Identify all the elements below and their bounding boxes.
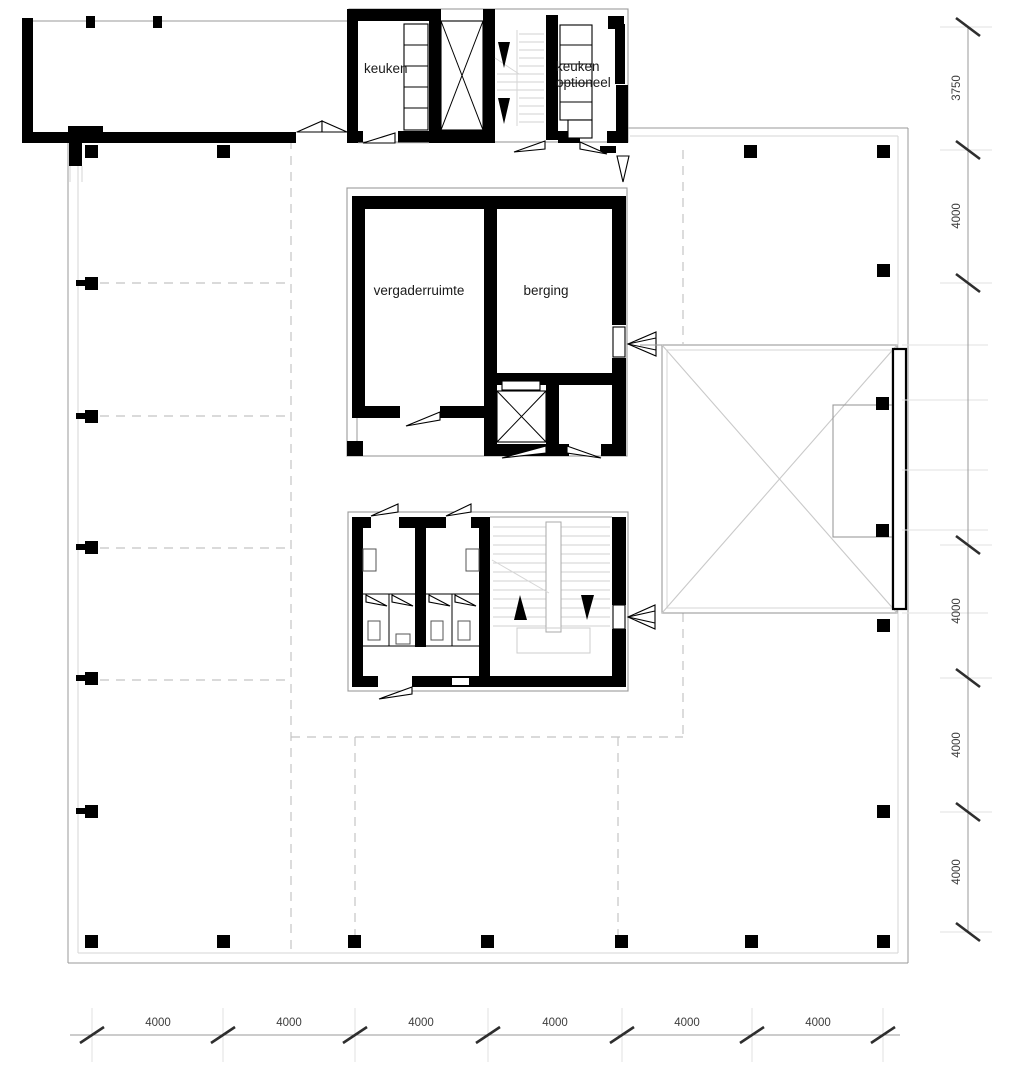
elevator-shaft bbox=[441, 21, 483, 130]
door-leaf bbox=[363, 133, 395, 143]
room-label-keuken-optioneel-1: keuken bbox=[556, 59, 600, 74]
room-label-keuken-optioneel-2: optioneel bbox=[556, 75, 611, 90]
sink bbox=[466, 549, 479, 571]
dim-label-bottom-4: 4000 bbox=[674, 1017, 700, 1029]
door-leaf bbox=[446, 504, 471, 516]
facade-mullion bbox=[86, 16, 95, 28]
facade-panel bbox=[893, 349, 906, 609]
wall-junction bbox=[68, 126, 103, 143]
stairs-down-arrow-icon bbox=[498, 42, 510, 68]
dim-label-right-1: 4000 bbox=[951, 203, 963, 229]
dimension-chain-bottom: 4000 4000 4000 4000 4000 4000 bbox=[70, 1008, 900, 1062]
facade-mullion bbox=[153, 16, 162, 28]
core-block-meeting: vergaderruimte berging bbox=[347, 188, 662, 458]
core-block-toilets-stair bbox=[348, 504, 655, 699]
dim-label-bottom-1: 4000 bbox=[276, 1017, 302, 1029]
void-inner-zone bbox=[833, 405, 897, 537]
stall-door-leaf bbox=[366, 595, 387, 606]
stair-newel bbox=[546, 522, 561, 632]
urinal bbox=[396, 634, 410, 644]
dim-label-right-2: 4000 bbox=[951, 598, 963, 624]
elevator-wall bbox=[483, 9, 495, 143]
room-label-vergaderruimte: vergaderruimte bbox=[374, 283, 465, 298]
room-label-berging: berging bbox=[523, 283, 568, 298]
door-leaf bbox=[371, 504, 398, 516]
floor-plan-drawing: keuken keuken optioneel bbox=[0, 0, 1014, 1067]
room-label-keuken: keuken bbox=[364, 61, 408, 76]
dim-label-bottom-3: 4000 bbox=[542, 1017, 568, 1029]
door-leaf bbox=[514, 141, 545, 152]
core-block-kitchen: keuken keuken optioneel bbox=[347, 9, 629, 182]
sink bbox=[363, 549, 376, 571]
stall-door-leaf bbox=[455, 595, 476, 606]
door-leaf bbox=[406, 412, 440, 426]
dimension-chain-right: 3750 4000 4000 4000 4000 bbox=[902, 18, 992, 941]
door-leaf bbox=[617, 156, 629, 182]
double-door-leaf bbox=[322, 121, 347, 132]
dim-label-right-4: 4000 bbox=[951, 859, 963, 885]
toilet bbox=[368, 621, 380, 640]
dim-label-bottom-5: 4000 bbox=[805, 1017, 831, 1029]
double-door-leaf bbox=[297, 121, 322, 132]
dim-label-bottom-2: 4000 bbox=[408, 1017, 434, 1029]
void-area bbox=[662, 345, 906, 613]
structural-column bbox=[876, 524, 889, 537]
structural-column bbox=[876, 397, 889, 410]
stall-door-leaf bbox=[429, 595, 450, 606]
stairs-down-arrow-icon bbox=[498, 98, 510, 124]
elevator-shaft-south bbox=[497, 381, 546, 442]
floor-plan-canvas: keuken keuken optioneel bbox=[0, 0, 1014, 1067]
stairwell-north bbox=[495, 30, 544, 126]
stairwell-south bbox=[490, 517, 655, 687]
wall-stub bbox=[69, 143, 82, 166]
dim-label-right-3: 4000 bbox=[951, 732, 963, 758]
door-leaf bbox=[379, 687, 412, 699]
stall-door-leaf bbox=[392, 595, 413, 606]
elevator-wall bbox=[429, 9, 441, 143]
dim-label-right-0: 3750 bbox=[951, 75, 963, 101]
annex-left-wall bbox=[22, 18, 33, 143]
annex-bottom-wall bbox=[22, 132, 296, 143]
door-to-void-south bbox=[613, 605, 655, 629]
annex-north-west bbox=[22, 16, 347, 182]
toilet bbox=[431, 621, 443, 640]
dim-label-bottom-0: 4000 bbox=[145, 1017, 171, 1029]
door-to-void-north bbox=[613, 327, 662, 357]
toilet bbox=[458, 621, 470, 640]
kitchen-counter bbox=[404, 24, 428, 130]
